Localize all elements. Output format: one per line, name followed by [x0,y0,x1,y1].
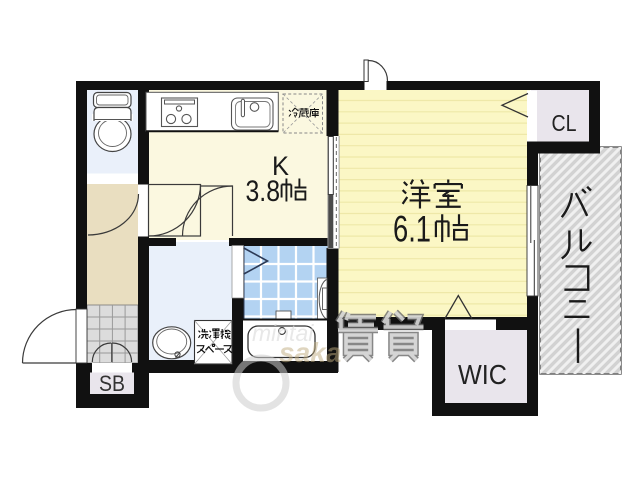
svg-text:3.8: 3.8 [246,175,281,208]
svg-text:WIC: WIC [458,359,507,390]
svg-text:CL: CL [552,110,577,136]
svg-text:SB: SB [99,371,125,396]
svg-text:saka: saka [279,337,341,368]
svg-text:6.1: 6.1 [393,209,431,250]
